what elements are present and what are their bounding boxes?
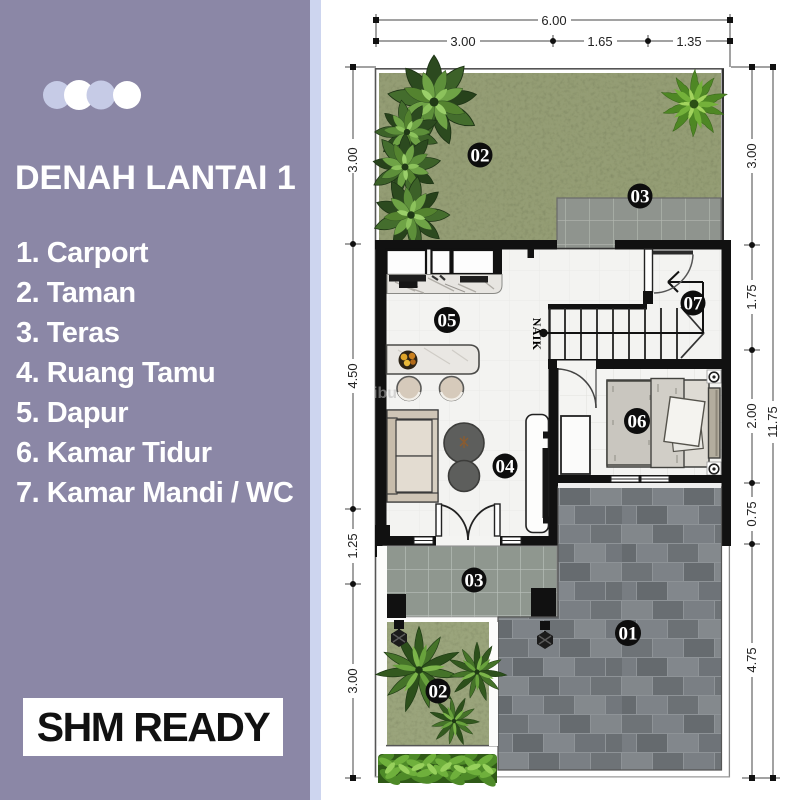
svg-text:3.00: 3.00 — [345, 147, 360, 172]
svg-text:02: 02 — [429, 682, 448, 703]
svg-text:1.25: 1.25 — [345, 533, 360, 558]
svg-text:05: 05 — [438, 311, 457, 332]
svg-text:3.00: 3.00 — [345, 668, 360, 693]
svg-text:1.65: 1.65 — [587, 34, 612, 49]
svg-text:01: 01 — [619, 624, 638, 645]
svg-text:NAIK: NAIK — [530, 318, 544, 351]
svg-text:6.00: 6.00 — [541, 13, 566, 28]
svg-text:03: 03 — [465, 571, 484, 592]
svg-text:3.00: 3.00 — [744, 143, 759, 168]
svg-text:4.50: 4.50 — [345, 363, 360, 388]
svg-text:02: 02 — [471, 146, 490, 167]
svg-text:4.75: 4.75 — [744, 647, 759, 672]
svg-text:3.00: 3.00 — [450, 34, 475, 49]
svg-text:11.75: 11.75 — [765, 406, 780, 438]
svg-text:07: 07 — [684, 294, 704, 315]
svg-text:1.75: 1.75 — [744, 284, 759, 309]
svg-text:2.00: 2.00 — [744, 403, 759, 428]
svg-text:06: 06 — [628, 412, 647, 433]
svg-text:1.35: 1.35 — [676, 34, 701, 49]
svg-text:0.75: 0.75 — [744, 501, 759, 526]
svg-text:ibu: ibu — [373, 385, 397, 402]
svg-text:04: 04 — [496, 457, 516, 478]
svg-text:03: 03 — [631, 187, 650, 208]
